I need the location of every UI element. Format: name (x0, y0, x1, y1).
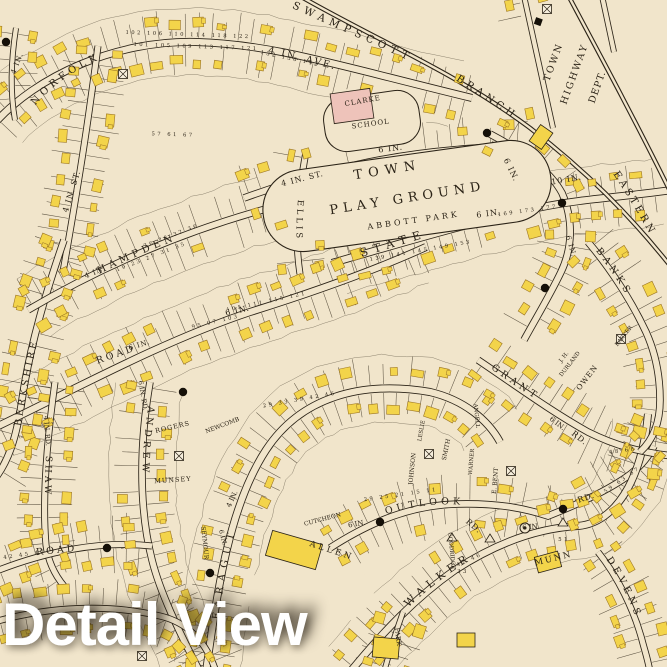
building (571, 476, 585, 489)
building (547, 218, 562, 229)
parcel-line (222, 48, 224, 70)
parcel-line (121, 531, 142, 534)
building (156, 512, 167, 524)
parcel-line (384, 393, 385, 419)
parcel-line (96, 91, 124, 95)
parcel-line (87, 156, 110, 160)
parcel-line (368, 365, 370, 384)
building (66, 386, 74, 394)
building (355, 541, 368, 554)
parcel-line (0, 406, 16, 409)
parcel-line (449, 124, 451, 146)
pipe-4in-rd: 4 IN. RD. (42, 415, 53, 446)
building (256, 61, 267, 72)
lot-numbers: 51 (558, 537, 570, 543)
building (193, 60, 201, 69)
building (585, 231, 595, 242)
building (504, 0, 514, 11)
parcel-line (113, 492, 138, 493)
building (28, 52, 37, 63)
parcel-line (94, 253, 101, 267)
building (583, 560, 595, 572)
building (320, 525, 332, 536)
building (304, 310, 314, 320)
building (156, 449, 164, 459)
building (213, 60, 222, 69)
building (197, 570, 205, 581)
building (8, 540, 22, 551)
parcel-line (99, 526, 100, 542)
parcel-line (51, 55, 58, 69)
building (285, 444, 295, 454)
traffic-island (485, 534, 495, 542)
building (49, 219, 59, 228)
parcel-line (395, 520, 403, 544)
building (144, 17, 159, 27)
building (126, 381, 137, 390)
parcel-line (85, 168, 105, 171)
building (570, 213, 581, 223)
building (477, 477, 489, 486)
parcel-line (4, 473, 26, 487)
parcel-line (437, 130, 439, 147)
building (198, 340, 210, 351)
parcel-line (153, 389, 176, 393)
building (333, 649, 344, 660)
property-newcomb: NEWCOMB (204, 416, 241, 436)
parcel-line (585, 477, 592, 492)
building (56, 174, 65, 185)
building (339, 367, 352, 380)
stable-xbox (543, 5, 552, 14)
parcel-line (94, 104, 114, 107)
parcel-line (0, 72, 8, 73)
building (239, 327, 252, 340)
parcel-line (592, 443, 602, 467)
building (65, 88, 75, 97)
property-smith: SMITH (441, 438, 452, 461)
building (647, 468, 662, 480)
building (347, 403, 361, 414)
traffic-island (558, 518, 568, 526)
parcel-line (435, 95, 440, 114)
detail-view-title: Detail View (2, 590, 307, 659)
parcel-line (246, 51, 249, 74)
building (112, 51, 122, 59)
parcel-line (80, 194, 103, 198)
building (228, 293, 241, 304)
building (560, 300, 575, 316)
building (362, 656, 373, 666)
building (143, 323, 155, 335)
parcel-line (323, 293, 332, 318)
building (232, 575, 244, 587)
hydrant-dot (103, 544, 111, 552)
parcel-line (322, 407, 330, 426)
rear-lot-line (532, 158, 655, 174)
building (126, 403, 135, 413)
parcel-line (192, 584, 214, 588)
building (298, 430, 310, 442)
building (277, 264, 286, 275)
parcel-line (347, 72, 351, 89)
building (19, 274, 32, 288)
building (623, 559, 635, 573)
parcel-line (274, 309, 279, 323)
building (24, 515, 33, 527)
parcel-line (158, 562, 174, 567)
building (93, 287, 106, 299)
building (610, 615, 621, 630)
parcel-line (0, 99, 9, 100)
hydrant-dot (559, 505, 567, 513)
map-canvas: SWAMPSCOTTBRANCHEASTERNNORFOLK4 IN. AVE.… (0, 0, 667, 667)
building (25, 446, 32, 460)
building (636, 380, 645, 389)
building (632, 499, 645, 511)
parcel-line (115, 235, 124, 256)
parcel-line (481, 560, 491, 578)
parcel-line (605, 521, 614, 535)
parcel-line (112, 516, 113, 541)
building (518, 302, 530, 315)
building (545, 230, 554, 239)
building (150, 61, 163, 70)
parcel-line (277, 262, 294, 264)
parcel-line (69, 114, 85, 116)
building (260, 24, 275, 35)
parcel-line (550, 384, 563, 404)
building (557, 154, 570, 167)
parcel-line (256, 412, 275, 430)
building (52, 522, 64, 534)
building (506, 556, 522, 568)
building (125, 540, 136, 548)
building (588, 179, 597, 187)
building (390, 367, 398, 375)
hydrant-dot (558, 199, 566, 207)
building (626, 341, 638, 352)
lot-numbers: 57 61 67 (151, 131, 194, 139)
building (443, 411, 458, 424)
parcel-line (655, 197, 657, 213)
building (503, 356, 518, 369)
building (160, 531, 173, 544)
hydrant-dot (541, 284, 549, 292)
building (70, 269, 83, 281)
parcel-line (153, 356, 163, 378)
parcel-line (42, 214, 68, 218)
building (462, 377, 474, 388)
large-building (457, 633, 475, 647)
parcel-line (515, 396, 524, 409)
parcel-line (113, 505, 139, 507)
street-label-owen: OWEN (574, 363, 600, 392)
building (237, 437, 250, 449)
building (105, 114, 115, 129)
building (526, 226, 541, 240)
atlas-map: SWAMPSCOTTBRANCHEASTERNNORFOLK4 IN. AVE.… (0, 0, 667, 667)
parcel-line (209, 519, 229, 525)
building (117, 494, 127, 503)
stable-xbox (507, 467, 516, 476)
parcel-line (659, 353, 667, 358)
building (19, 112, 31, 124)
parcel-line (271, 55, 276, 79)
building (407, 402, 421, 412)
parcel-line (225, 326, 235, 353)
parcel-line (249, 317, 254, 332)
parcel-line (340, 43, 344, 61)
building (29, 528, 45, 539)
building (53, 42, 67, 55)
building (312, 416, 326, 430)
parcel-line (101, 27, 108, 50)
building (270, 456, 281, 468)
parcel-line (37, 346, 57, 351)
building (82, 561, 93, 572)
building (62, 492, 72, 504)
building (0, 81, 9, 96)
building (346, 47, 360, 57)
parcel-line (83, 389, 92, 406)
building (158, 406, 167, 417)
building (471, 434, 484, 448)
building (522, 365, 537, 380)
parcel-line (591, 570, 606, 580)
building (642, 281, 657, 296)
building (632, 400, 642, 409)
property-rogers: ROGERS (154, 419, 190, 435)
building (19, 493, 29, 503)
building (241, 534, 254, 548)
building (270, 281, 281, 290)
building (605, 594, 616, 607)
parcel-line (504, 313, 527, 326)
parcel-line (498, 15, 524, 21)
building (193, 17, 206, 27)
building (485, 231, 496, 240)
stable-xbox (119, 70, 128, 79)
building (71, 78, 81, 87)
parcel-line (150, 527, 168, 530)
parcel-line (19, 491, 41, 492)
building (239, 555, 252, 568)
parcel-line (21, 477, 42, 478)
parcel-line (651, 323, 667, 333)
parcel-line (336, 288, 345, 314)
parcel-line (70, 523, 74, 545)
building (60, 109, 71, 120)
parcel-line (537, 241, 565, 246)
building (91, 179, 103, 193)
building (571, 281, 583, 294)
parcel-line (177, 311, 186, 332)
parcel-line (429, 596, 447, 618)
building (37, 369, 49, 385)
property-leslie: LESLIE (417, 420, 427, 442)
building (546, 319, 561, 335)
parcel-line (63, 126, 83, 129)
parcel-line (64, 50, 70, 64)
building (8, 340, 18, 355)
field-block (530, 620, 620, 667)
building (167, 552, 176, 563)
parcel-line (214, 197, 221, 218)
building (63, 451, 72, 462)
parcel-line (128, 557, 147, 562)
building (423, 406, 439, 420)
building (48, 351, 61, 364)
building (545, 247, 557, 257)
building (287, 149, 296, 162)
parcel-line (213, 330, 221, 351)
building (521, 280, 534, 292)
parcel-line (75, 553, 79, 575)
building (325, 43, 336, 52)
building (169, 20, 181, 30)
parcel-line (290, 27, 295, 49)
building (140, 227, 152, 237)
parcel-line (578, 530, 580, 551)
parcel-line (104, 274, 112, 291)
building (304, 30, 318, 41)
parcel-line (458, 101, 465, 129)
parcel-line (56, 401, 81, 404)
parcel-line (237, 527, 255, 532)
building (458, 423, 470, 435)
building (615, 245, 630, 260)
parcel-line (595, 229, 613, 244)
building (170, 55, 183, 64)
parcel-line (50, 466, 77, 468)
building (418, 607, 433, 622)
building (386, 278, 402, 291)
parcel-line (617, 652, 641, 659)
street-label-grant: GRANT (489, 362, 542, 403)
building (218, 481, 230, 492)
parcel-line (0, 450, 3, 457)
building (613, 210, 622, 218)
building (423, 104, 435, 114)
building (289, 273, 306, 287)
parcel-line (409, 260, 416, 276)
parcel-line (127, 229, 136, 250)
building (381, 601, 392, 612)
parcel-line (90, 130, 118, 134)
parcel-line (493, 406, 515, 425)
parcel-line (250, 428, 267, 441)
building (28, 31, 38, 44)
building (58, 129, 67, 142)
street-label-ellis: ELLIS (293, 199, 304, 241)
parcel-line (155, 328, 161, 342)
parcel-line (477, 227, 482, 247)
stable-xbox (425, 450, 434, 459)
building (61, 153, 70, 164)
rear-lot-line (387, 427, 667, 667)
parcel-line (470, 566, 480, 583)
parcel-line (429, 59, 435, 83)
parcel-line (229, 199, 234, 214)
building (51, 195, 61, 207)
building (489, 338, 502, 351)
building (232, 458, 245, 473)
building (589, 513, 604, 525)
building (498, 484, 514, 495)
parcel-line (603, 203, 605, 221)
parcel-line (0, 58, 9, 60)
building (345, 296, 358, 307)
parcel-line (231, 552, 249, 556)
parcel-line (0, 93, 4, 107)
building (13, 295, 26, 311)
parcel-line (407, 516, 412, 533)
parcel-line (49, 479, 75, 480)
building (124, 562, 132, 569)
parcel-line (251, 19, 254, 42)
building (90, 203, 97, 212)
building (446, 110, 456, 120)
parcel-line (327, 264, 333, 280)
building (630, 413, 643, 426)
building (414, 524, 426, 536)
parcel-line (594, 406, 606, 430)
parcel-line (115, 438, 138, 440)
hydrant-dot (179, 388, 187, 396)
building (457, 127, 467, 136)
parcel-line (34, 385, 50, 387)
building (191, 243, 204, 253)
building (344, 629, 357, 642)
building (0, 26, 2, 37)
property-warner: WARNER (468, 448, 476, 476)
building (645, 602, 655, 614)
building (101, 557, 115, 567)
building (368, 404, 378, 414)
building (366, 288, 378, 298)
parcel-line (332, 69, 338, 93)
property-munsey: MUNSEY (154, 475, 192, 486)
building (653, 304, 665, 317)
parcel-line (250, 491, 267, 498)
parcel-line (261, 467, 281, 478)
hydrant-dot (483, 129, 491, 137)
building (562, 387, 575, 400)
parcel-line (493, 554, 502, 572)
parcel-line (165, 350, 172, 365)
parcel-line (114, 20, 121, 46)
hydrant-dot (206, 569, 214, 577)
building (60, 561, 71, 570)
building (315, 374, 329, 388)
building (247, 282, 263, 295)
building (129, 63, 144, 77)
property-cutcheon: CUTCHEON (303, 511, 342, 528)
parcel-line (383, 364, 384, 384)
street-label-outlook: OUTLOOK (384, 496, 465, 517)
building (64, 427, 74, 442)
parcel-line (444, 509, 445, 524)
building (634, 580, 647, 593)
building (259, 320, 273, 333)
building (0, 407, 2, 419)
building (246, 513, 255, 525)
parcel-line (593, 580, 612, 591)
building (635, 358, 644, 373)
hydrant-dot (376, 518, 384, 526)
building (593, 538, 603, 548)
